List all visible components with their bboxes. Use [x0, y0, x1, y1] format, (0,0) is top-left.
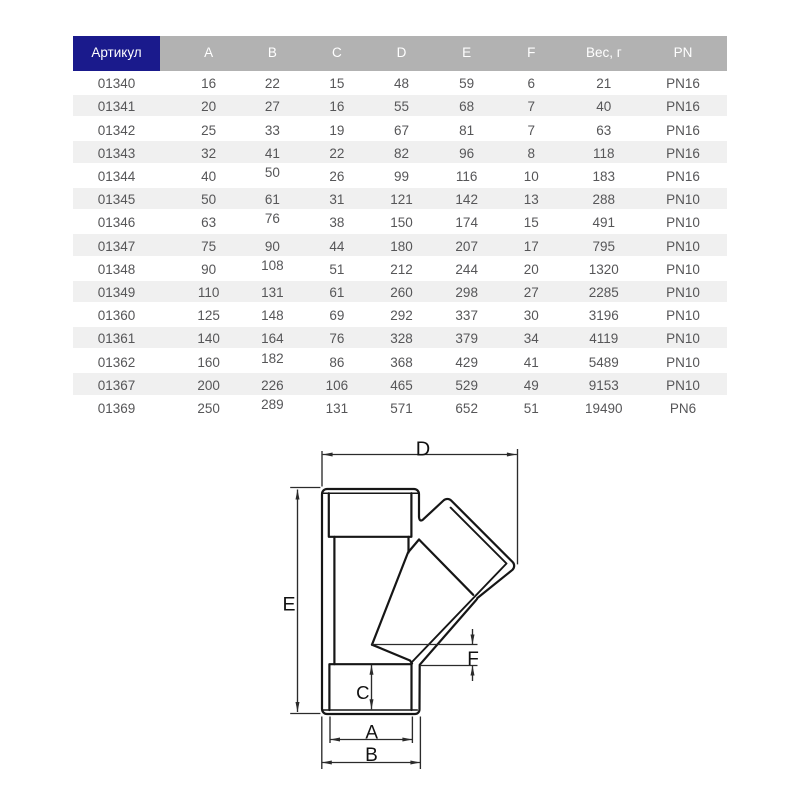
- svg-text:B: B: [365, 745, 378, 766]
- svg-text:D: D: [416, 439, 430, 461]
- svg-text:A: A: [365, 722, 378, 743]
- svg-text:F: F: [467, 649, 479, 670]
- svg-text:C: C: [356, 682, 369, 703]
- svg-text:E: E: [282, 593, 295, 615]
